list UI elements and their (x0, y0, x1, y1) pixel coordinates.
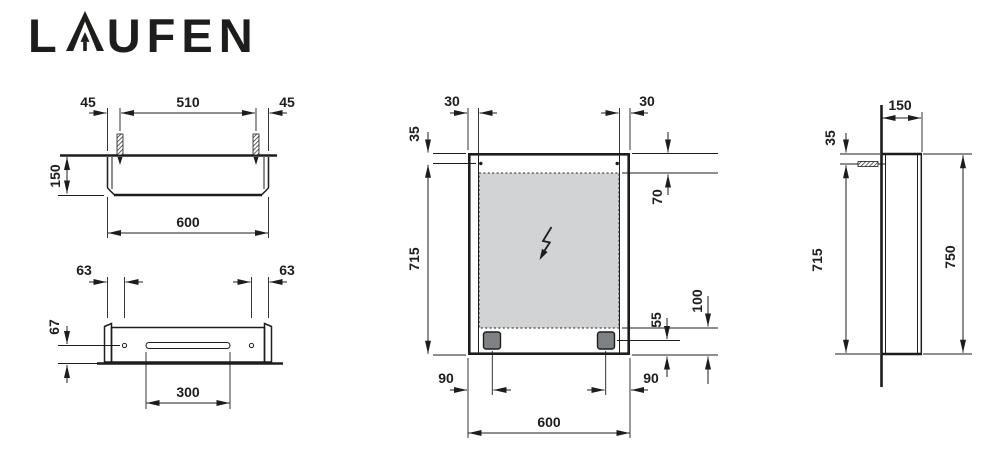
dim-top-depth: 150 (47, 164, 63, 188)
mounting-hole-right (249, 343, 253, 347)
technical-drawing-page: L UFEN (0, 0, 1000, 457)
dim-side-height: 750 (942, 245, 958, 269)
dim-front-width: 600 (537, 414, 561, 430)
dim-front-glass-top: 70 (649, 189, 665, 205)
dim-top-offset-right: 45 (279, 94, 295, 110)
dimension-drawing: 45 510 45 150 600 (0, 0, 1000, 457)
mounting-hole-left (122, 343, 126, 347)
led-spot-right (598, 332, 615, 349)
dim-front-spot-inset-left: 90 (438, 370, 454, 386)
dim-front-hole-inset-right: 30 (639, 93, 655, 109)
mounting-hole-right (616, 162, 619, 165)
wall-anchor-right-icon (253, 134, 259, 165)
cabinet-side-outline (882, 154, 923, 354)
led-spot-left (484, 332, 501, 349)
side-view: 150 35 715 750 (809, 97, 972, 387)
bottom-view-dimensions: 63 63 67 300 (46, 262, 295, 409)
dim-front-glass-bottom: 100 (689, 289, 705, 313)
mounting-hole-left (479, 162, 482, 165)
bottom-slot (146, 343, 230, 349)
wall-anchor-left-icon (117, 134, 123, 165)
cabinet-top-outline (108, 157, 269, 195)
dim-bottom-hole-right: 63 (279, 262, 295, 278)
dim-top-offset-left: 45 (80, 94, 96, 110)
dim-top-hole-spacing: 510 (176, 94, 200, 110)
top-view: 45 510 45 150 600 (47, 94, 295, 238)
bottom-view: 63 63 67 300 (46, 262, 295, 409)
dim-front-spot-inset-right: 90 (643, 370, 659, 386)
dim-side-mounting-height: 715 (809, 248, 825, 272)
dim-bottom-hole-left: 63 (76, 262, 92, 278)
dim-side-hole-top: 35 (822, 130, 838, 146)
dim-bottom-slot-width: 300 (176, 384, 200, 400)
mirror-glass (479, 173, 619, 328)
dim-bottom-hole-to-wall: 67 (46, 319, 62, 335)
dim-front-spot-bottom: 55 (648, 312, 664, 328)
dim-front-mounting-height: 715 (406, 247, 422, 271)
side-view-dimensions: 150 35 715 750 (809, 97, 972, 354)
top-view-dimensions: 45 510 45 150 600 (47, 94, 295, 238)
dim-top-width: 600 (176, 214, 200, 230)
dim-front-hole-top: 35 (406, 126, 422, 142)
front-view: 30 30 35 715 70 55 (406, 93, 718, 438)
dim-side-depth: 150 (888, 97, 912, 113)
dim-front-hole-inset-left: 30 (444, 93, 460, 109)
